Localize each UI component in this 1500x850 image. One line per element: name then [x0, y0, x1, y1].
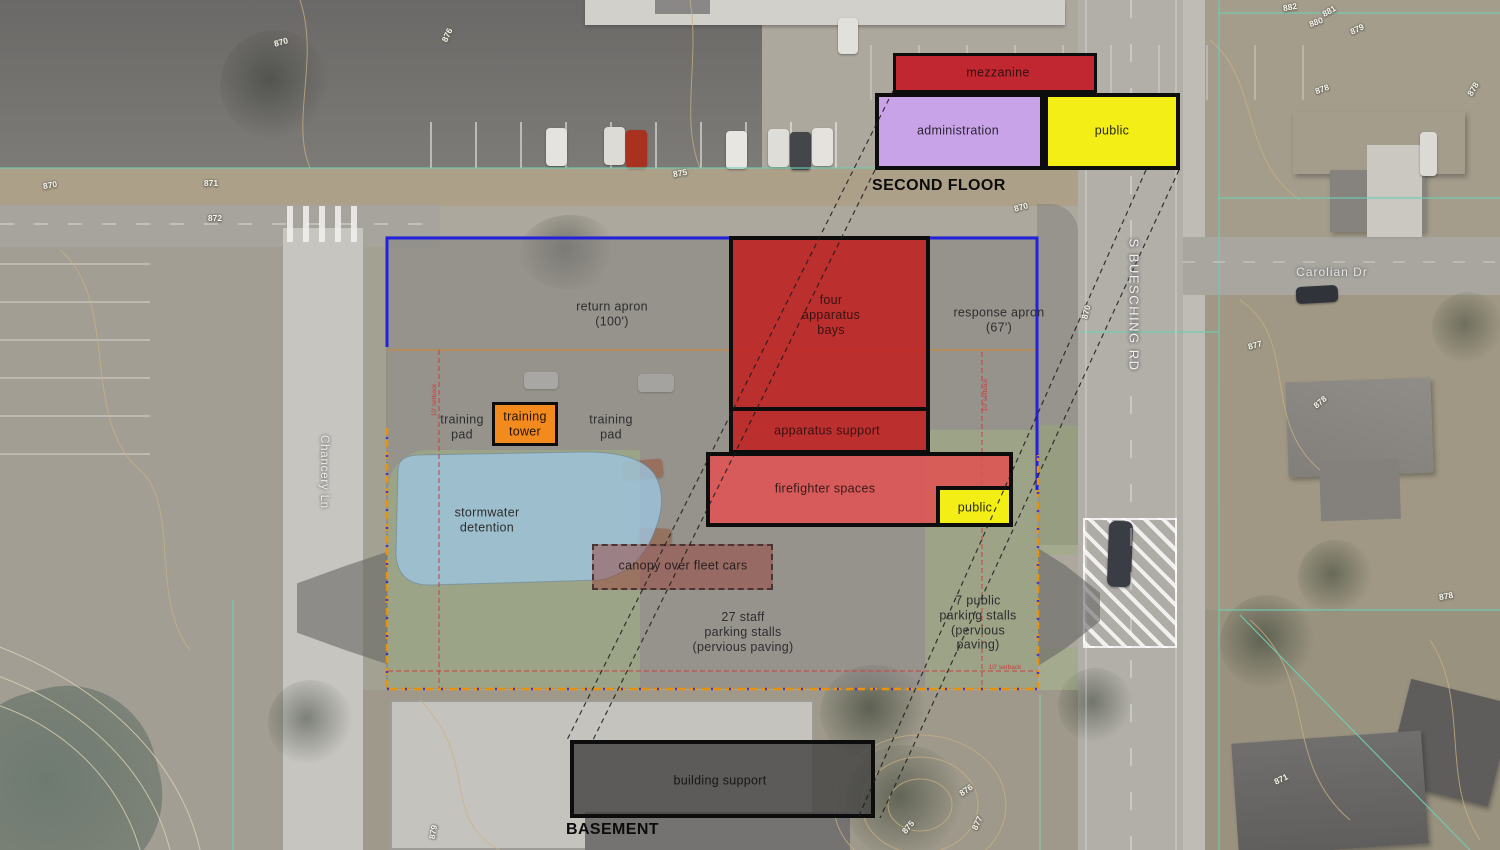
street-label-carolian: Carolian Dr: [1296, 265, 1368, 279]
setback-annotation: 10' setback: [989, 664, 1022, 672]
label-apparatus-support: apparatus support: [774, 424, 880, 439]
label-mezzanine: mezzanine: [966, 66, 1029, 81]
title-basement: BASEMENT: [566, 821, 659, 839]
title-second-floor: SECOND FLOOR: [872, 177, 1006, 195]
label-public-parking: 7 public parking stalls (pervious paving…: [939, 594, 1016, 653]
street-label-buesching: S BUESCHING RD: [1127, 239, 1142, 372]
contour-label: 872: [208, 213, 222, 223]
label-stormwater-detention: stormwater detention: [455, 505, 520, 535]
label-public-ground: public: [958, 501, 992, 516]
site-plan-canvas: return apron (100') response apron (67')…: [0, 0, 1500, 850]
label-training-pad-east: training pad: [589, 412, 632, 442]
contour-label: 871: [204, 178, 218, 188]
label-building-support: building support: [673, 774, 766, 789]
label-four-apparatus-bays: four apparatus bays: [802, 293, 860, 337]
setback-annotation: 10' setback: [982, 379, 990, 412]
label-return-apron: return apron (100'): [576, 299, 648, 329]
label-public-second-floor: public: [1095, 124, 1129, 139]
setback-annotation: 10' setback: [431, 384, 439, 417]
label-firefighter-spaces: firefighter spaces: [775, 482, 876, 497]
label-administration: administration: [917, 124, 999, 139]
label-training-tower: training tower: [503, 409, 546, 439]
projection-lines-svg: [0, 0, 1500, 850]
label-staff-parking: 27 staff parking stalls (pervious paving…: [693, 610, 794, 654]
label-training-pad-west: training pad: [440, 412, 483, 442]
street-label-chancery: Chancery Ln: [318, 435, 330, 509]
label-response-apron: response apron (67'): [953, 305, 1044, 335]
label-canopy: canopy over fleet cars: [619, 559, 748, 574]
